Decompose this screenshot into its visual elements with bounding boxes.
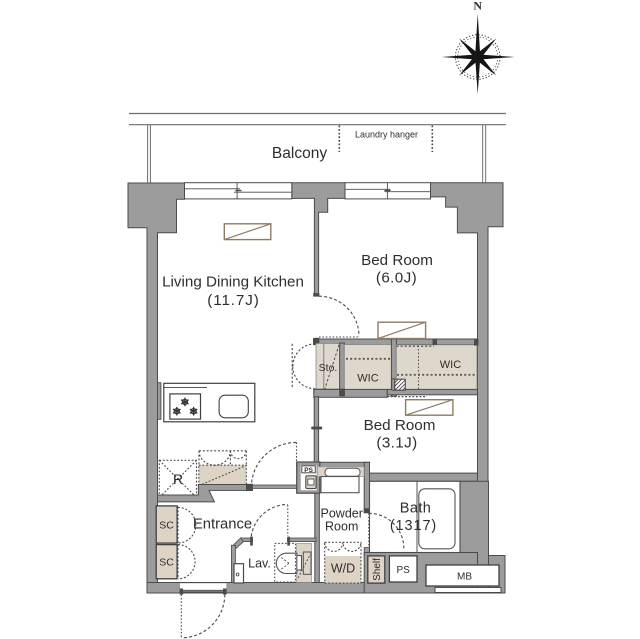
svg-text:Lav.: Lav. bbox=[248, 557, 271, 571]
svg-text:Room: Room bbox=[325, 520, 358, 534]
svg-text:WIC: WIC bbox=[357, 373, 378, 385]
svg-text:PS: PS bbox=[304, 467, 313, 474]
svg-text:Shelf: Shelf bbox=[372, 558, 383, 581]
svg-text:Sto.: Sto. bbox=[319, 362, 338, 374]
svg-text:Living Dining Kitchen: Living Dining Kitchen bbox=[162, 274, 304, 291]
svg-text:W/D: W/D bbox=[331, 562, 355, 576]
svg-text:MB: MB bbox=[457, 572, 472, 583]
svg-text:Powder: Powder bbox=[321, 507, 363, 521]
svg-text:N: N bbox=[473, 0, 482, 13]
svg-text:Bed Room: Bed Room bbox=[364, 417, 436, 434]
svg-text:Entrance: Entrance bbox=[193, 517, 252, 533]
svg-text:PS: PS bbox=[397, 565, 411, 576]
svg-text:Bed Room: Bed Room bbox=[361, 252, 433, 269]
svg-text:(1317): (1317) bbox=[390, 518, 437, 534]
svg-text:R: R bbox=[173, 471, 183, 487]
svg-text:SC: SC bbox=[159, 557, 174, 569]
svg-text:Laundry hanger: Laundry hanger bbox=[355, 130, 418, 140]
svg-text:(3.1J): (3.1J) bbox=[376, 435, 417, 452]
svg-text:Bath: Bath bbox=[400, 501, 431, 517]
svg-text:SC: SC bbox=[159, 520, 174, 532]
svg-text:Balcony: Balcony bbox=[272, 145, 327, 162]
svg-text:(6.0J): (6.0J) bbox=[376, 270, 417, 287]
svg-text:WIC: WIC bbox=[440, 359, 461, 371]
svg-text:(11.7J): (11.7J) bbox=[207, 292, 259, 309]
